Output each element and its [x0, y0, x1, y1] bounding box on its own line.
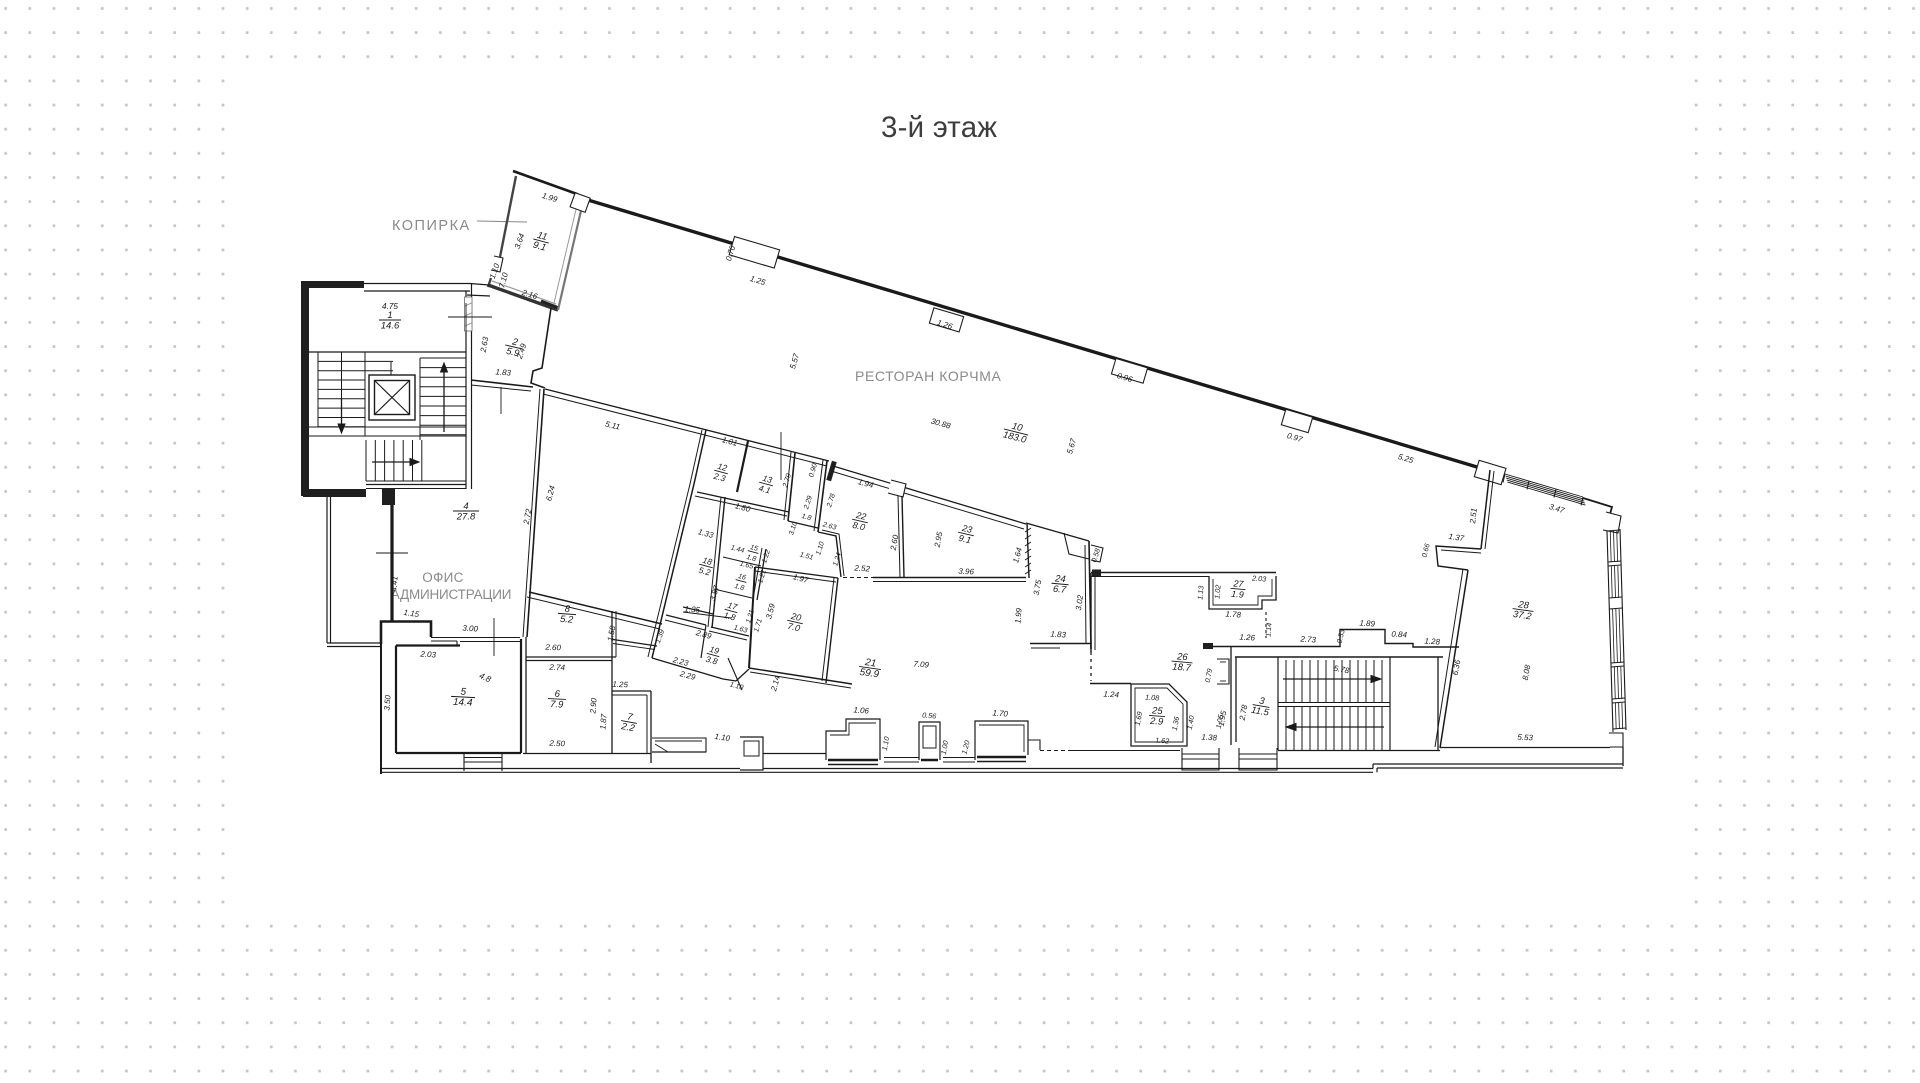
svg-text:АДМИНИСТРАЦИИ: АДМИНИСТРАЦИИ — [391, 587, 511, 602]
svg-text:1.35: 1.35 — [684, 604, 701, 614]
svg-text:1.89: 1.89 — [1359, 618, 1376, 628]
svg-text:18.7: 18.7 — [1172, 661, 1192, 674]
svg-text:0.56: 0.56 — [922, 710, 937, 720]
svg-text:1.14: 1.14 — [1263, 622, 1273, 637]
svg-text:7.09: 7.09 — [913, 659, 930, 669]
svg-text:1.78: 1.78 — [1225, 609, 1242, 619]
svg-text:1.28: 1.28 — [1424, 636, 1441, 646]
svg-text:1.83: 1.83 — [1050, 629, 1067, 639]
svg-text:5.53: 5.53 — [1517, 733, 1534, 743]
svg-text:1.87: 1.87 — [598, 713, 608, 730]
svg-text:3-й этаж: 3-й этаж — [881, 111, 997, 144]
svg-text:1.83: 1.83 — [495, 367, 512, 377]
svg-text:27.8: 27.8 — [456, 511, 476, 522]
svg-text:1.06: 1.06 — [853, 705, 870, 715]
svg-text:ОФИС: ОФИС — [422, 570, 463, 585]
svg-text:4: 4 — [463, 501, 468, 512]
svg-text:7.9: 7.9 — [550, 699, 564, 711]
svg-text:2.03: 2.03 — [1251, 573, 1267, 583]
svg-text:2.51: 2.51 — [1468, 508, 1479, 525]
svg-text:14.4: 14.4 — [453, 697, 473, 709]
svg-text:27: 27 — [1232, 578, 1245, 589]
svg-text:1.25: 1.25 — [612, 680, 629, 690]
svg-text:3.96: 3.96 — [958, 567, 975, 577]
svg-text:14.6: 14.6 — [381, 320, 400, 331]
svg-text:5.2: 5.2 — [560, 614, 575, 626]
svg-text:2.60: 2.60 — [544, 643, 562, 653]
svg-text:1.38: 1.38 — [1201, 732, 1218, 742]
svg-text:0.84: 0.84 — [1391, 629, 1408, 639]
svg-text:1.9: 1.9 — [1231, 589, 1244, 600]
svg-text:1.26: 1.26 — [1239, 632, 1256, 642]
svg-text:2.90: 2.90 — [588, 697, 598, 715]
svg-text:3.00: 3.00 — [462, 623, 479, 633]
svg-text:3.50: 3.50 — [382, 694, 392, 711]
svg-text:2.74: 2.74 — [548, 663, 566, 673]
svg-text:1.62: 1.62 — [1155, 736, 1170, 746]
svg-text:2.03: 2.03 — [419, 649, 437, 659]
svg-text:2.52: 2.52 — [853, 563, 871, 573]
svg-text:1: 1 — [387, 310, 392, 321]
svg-text:1.24: 1.24 — [1103, 689, 1120, 699]
svg-text:4.41: 4.41 — [389, 576, 399, 592]
svg-text:РЕСТОРАН КОРЧМА: РЕСТОРАН КОРЧМА — [855, 368, 1001, 384]
svg-text:6.7: 6.7 — [1052, 584, 1067, 596]
svg-text:2.50: 2.50 — [548, 739, 566, 749]
svg-text:2.73: 2.73 — [1299, 634, 1317, 644]
svg-text:1.02: 1.02 — [1212, 584, 1222, 599]
svg-text:1.13: 1.13 — [1195, 585, 1205, 600]
svg-text:КОПИРКА: КОПИРКА — [392, 218, 471, 234]
svg-text:1.08: 1.08 — [1145, 693, 1160, 703]
svg-text:2.9: 2.9 — [1149, 716, 1165, 728]
svg-text:1.70: 1.70 — [992, 708, 1009, 718]
svg-text:1.99: 1.99 — [1013, 607, 1023, 624]
